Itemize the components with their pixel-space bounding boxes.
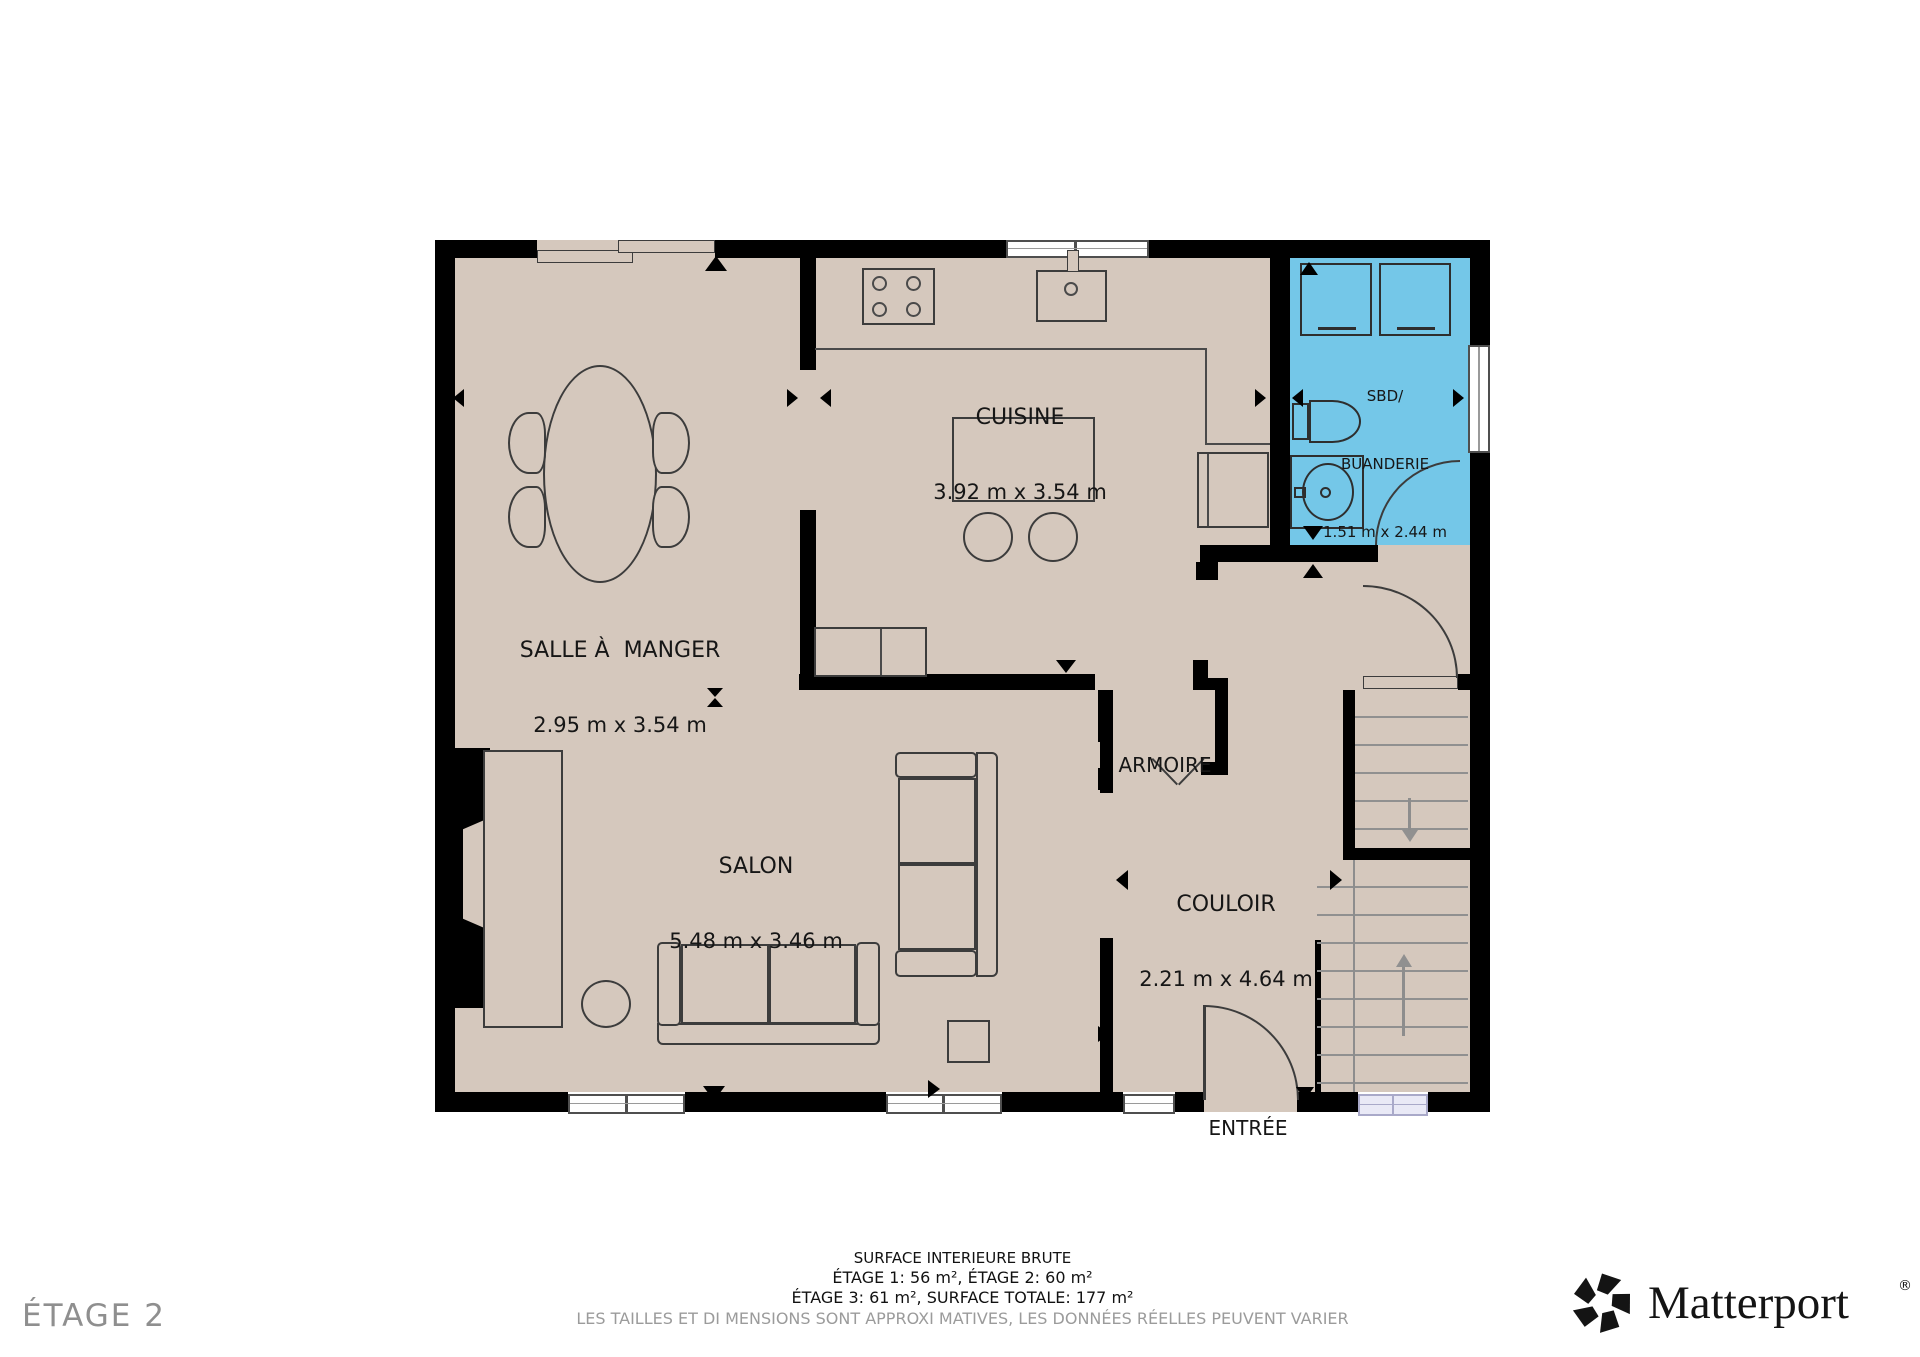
sofa-armrest	[856, 942, 880, 1026]
stairs-divider	[1353, 860, 1355, 1092]
wall	[1270, 258, 1290, 545]
wall	[1470, 453, 1490, 1092]
counter-edge	[815, 348, 1207, 350]
counter-edge	[1205, 443, 1270, 445]
dimension-arrow-icon	[453, 389, 464, 407]
opening-marker-icon	[705, 256, 727, 271]
fridge-cabinet	[1197, 452, 1269, 528]
matterport-wordmark: Matterport	[1648, 1276, 1849, 1330]
room-dims: 2.21 m x 4.64 m	[1139, 967, 1313, 992]
room-label-salle-a-manger: SALLE À MANGER 2.95 m x 3.54 m	[520, 588, 721, 788]
dining-table	[543, 365, 657, 583]
disclaimer: LES TAILLES ET DI MENSIONS SONT APPROXI …	[435, 1308, 1490, 1330]
side-table-square	[947, 1020, 990, 1063]
opening-marker-icon	[1303, 564, 1323, 578]
floor-label: ÉTAGE 2	[22, 1298, 166, 1334]
window	[1123, 1094, 1175, 1114]
dryer	[1379, 263, 1451, 336]
toilet-tank	[1292, 403, 1309, 440]
surface-line: ÉTAGE 1: 56 m², ÉTAGE 2: 60 m²	[435, 1268, 1490, 1288]
wall	[435, 1092, 568, 1112]
wall	[1002, 1092, 1123, 1112]
window	[1358, 1094, 1428, 1116]
opening-marker-icon	[928, 1080, 940, 1098]
dimension-arrow-icon	[820, 389, 831, 407]
sofa-cushion	[898, 778, 976, 864]
dining-chair	[508, 486, 546, 548]
dining-chair	[508, 412, 546, 474]
wall	[1100, 938, 1113, 1092]
wall	[1149, 240, 1490, 258]
room-label-salon: SALON 5.48 m x 3.46 m	[669, 804, 843, 1004]
dimension-arrow-icon	[1255, 389, 1266, 407]
dimension-arrow-icon	[1453, 389, 1464, 407]
window	[886, 1094, 1002, 1114]
room-label-couloir: COULOIR 2.21 m x 4.64 m	[1139, 842, 1313, 1042]
room-dims: 3.92 m x 3.54 m	[933, 480, 1107, 505]
sofa-armrest	[895, 752, 977, 778]
sofa-armrest	[895, 950, 977, 977]
opening-marker-icon	[1056, 660, 1076, 673]
opening-marker-icon	[1296, 1087, 1314, 1100]
arrow-up-icon	[1396, 954, 1412, 967]
arrow-down-icon	[1402, 830, 1418, 842]
sofa-back	[657, 1023, 880, 1045]
wall	[1196, 562, 1218, 580]
matterport-logo-icon	[1570, 1268, 1634, 1338]
stove	[862, 268, 935, 325]
wall	[715, 240, 1006, 258]
sliding-door-panel	[618, 240, 715, 253]
dimension-arrow-icon	[787, 389, 798, 407]
tv-cabinet	[483, 750, 563, 1028]
room-label-sbd-buanderie: SBD/ BUANDERIE 1.51 m x 2.44 m	[1323, 337, 1447, 591]
stairs-up-arrow	[1402, 966, 1405, 1036]
room-name: ENTRÉE	[1209, 1116, 1288, 1141]
room-name: SBD/	[1323, 387, 1447, 405]
stairs-lower-flight	[1317, 860, 1468, 1092]
wall	[1428, 1092, 1490, 1112]
room-name: SALON	[669, 854, 843, 879]
wall	[1175, 1092, 1204, 1112]
room-label-armoire: ARMOIRE	[1118, 703, 1211, 828]
surface-line: ÉTAGE 3: 61 m², SURFACE TOTALE: 177 m²	[435, 1288, 1490, 1308]
wall	[1343, 848, 1470, 860]
kitchen-sink	[1036, 270, 1107, 322]
room-dims: 1.51 m x 2.44 m	[1323, 523, 1447, 541]
wall	[1458, 674, 1470, 690]
window	[1468, 345, 1490, 453]
room-name: BUANDERIE	[1323, 455, 1447, 473]
dimension-arrow-icon	[1116, 870, 1128, 890]
opening-marker-icon	[1303, 526, 1323, 540]
wall	[1100, 690, 1113, 793]
window	[568, 1094, 685, 1114]
sofa-cushion	[898, 864, 976, 950]
room-name: SALLE À MANGER	[520, 638, 721, 663]
wall	[1215, 678, 1228, 775]
wall	[1343, 690, 1355, 848]
opening-marker-icon	[1300, 262, 1318, 275]
wall	[800, 258, 816, 370]
surface-title: SURFACE INTERIEURE BRUTE	[435, 1248, 1490, 1268]
sofa-back	[976, 752, 998, 977]
dimension-arrow-icon	[1292, 389, 1303, 407]
floor-plan-page: SALLE À MANGER 2.95 m x 3.54 m CUISINE 3…	[0, 0, 1920, 1357]
opening-marker-icon	[703, 1086, 725, 1101]
dimension-arrow-icon	[1330, 870, 1342, 890]
room-dims: 5.48 m x 3.46 m	[669, 929, 843, 954]
surface-summary: SURFACE INTERIEURE BRUTE ÉTAGE 1: 56 m²,…	[435, 1248, 1490, 1330]
room-name: COULOIR	[1139, 892, 1313, 917]
corner-cabinet	[814, 627, 927, 677]
matterport-logo: Matterport ®	[1570, 1268, 1910, 1348]
stairs-upper-flight	[1355, 690, 1468, 848]
room-label-entree: ENTRÉE	[1209, 1066, 1288, 1191]
side-table-round	[581, 980, 631, 1028]
registered-mark: ®	[1898, 1278, 1912, 1294]
opening-marker-icon	[1098, 1026, 1109, 1042]
stairs-down-arrow	[1408, 798, 1411, 832]
counter-edge	[1205, 348, 1207, 445]
room-label-cuisine: CUISINE 3.92 m x 3.54 m	[933, 355, 1107, 555]
faucet	[1067, 250, 1079, 272]
room-name: CUISINE	[933, 405, 1107, 430]
room-dims: 2.95 m x 3.54 m	[520, 713, 721, 738]
room-name: ARMOIRE	[1118, 753, 1211, 778]
wall	[1470, 240, 1490, 345]
